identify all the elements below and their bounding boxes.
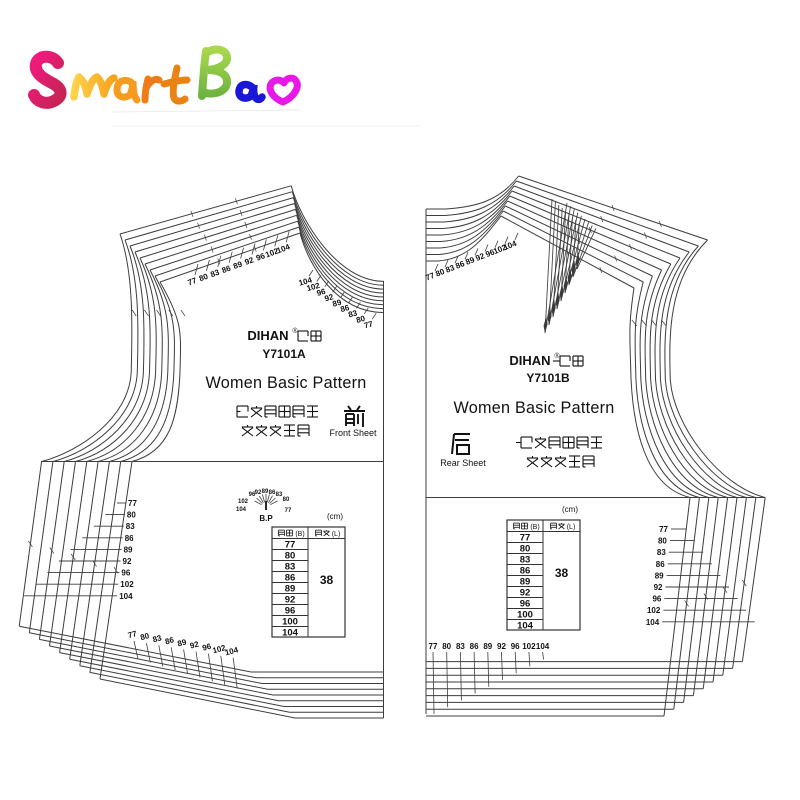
svg-text:89: 89 [520,577,531,588]
svg-text:92: 92 [285,595,296,606]
svg-text:77: 77 [429,642,438,651]
svg-text:83: 83 [285,562,296,573]
svg-text:B.P: B.P [259,514,273,523]
svg-text:89: 89 [655,571,664,580]
svg-text:104: 104 [517,621,534,632]
svg-text:38: 38 [555,566,569,580]
svg-text:102: 102 [120,580,134,589]
svg-text:83: 83 [657,548,666,557]
svg-text:96: 96 [121,569,130,578]
svg-text:(cm): (cm) [562,505,578,514]
svg-text:80: 80 [127,511,136,520]
svg-text:80: 80 [442,642,451,651]
svg-text:92: 92 [123,557,132,566]
svg-text:Y7101A: Y7101A [262,347,306,361]
svg-text:104: 104 [536,642,550,651]
svg-text:102: 102 [522,642,536,651]
svg-text:89: 89 [285,584,296,595]
svg-text:80: 80 [283,497,290,503]
svg-text:(L): (L) [332,531,341,538]
svg-text:89: 89 [124,545,133,554]
svg-text:77: 77 [285,508,292,514]
svg-text:DIHAN: DIHAN [509,353,550,368]
svg-text:80: 80 [658,537,667,546]
svg-text:96: 96 [520,599,531,610]
svg-text:80: 80 [520,544,531,555]
svg-text:(B): (B) [530,524,539,531]
svg-text:86: 86 [285,573,296,584]
svg-text:92: 92 [497,642,506,651]
svg-text:83: 83 [126,522,135,531]
svg-text:83: 83 [520,555,531,566]
svg-text:104: 104 [646,618,660,627]
svg-text:96: 96 [652,595,661,604]
svg-text:100: 100 [282,617,298,628]
svg-text:92: 92 [654,583,663,592]
svg-text:104: 104 [282,628,299,639]
svg-text:96: 96 [511,642,520,651]
svg-text:89: 89 [483,642,492,651]
svg-text:77: 77 [128,499,137,508]
svg-text:104: 104 [119,592,133,601]
svg-text:86: 86 [125,534,134,543]
svg-text:100: 100 [517,610,533,621]
svg-text:(L): (L) [567,524,576,531]
svg-text:Y7101B: Y7101B [526,371,570,385]
svg-text:86: 86 [470,642,479,651]
svg-text:83: 83 [456,642,465,651]
svg-text:DIHAN: DIHAN [247,328,288,343]
svg-text:Front Sheet: Front Sheet [329,428,377,438]
svg-text:Rear Sheet: Rear Sheet [440,458,486,468]
svg-text:86: 86 [520,566,531,577]
svg-text:92: 92 [520,588,531,599]
svg-text:102: 102 [647,606,661,615]
svg-text:77: 77 [520,533,531,544]
svg-text:102: 102 [238,499,249,505]
svg-text:86: 86 [656,560,665,569]
svg-text:Women Basic Pattern: Women Basic Pattern [206,374,367,392]
svg-text:77: 77 [285,540,296,551]
svg-text:Women Basic Pattern: Women Basic Pattern [454,399,615,417]
svg-text:77: 77 [659,525,668,534]
svg-text:96: 96 [285,606,296,617]
svg-text:(cm): (cm) [327,512,343,521]
svg-text:104: 104 [236,507,247,513]
svg-text:38: 38 [320,573,334,587]
svg-text:(B): (B) [295,531,304,538]
svg-text:80: 80 [285,551,296,562]
